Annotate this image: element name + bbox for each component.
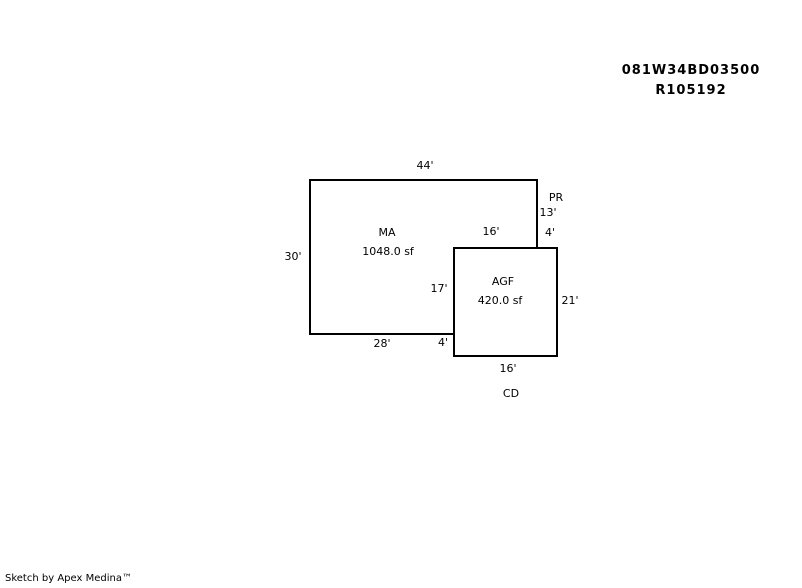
dim-agf-left: 17' — [430, 283, 447, 295]
agf-area-label: 420.0 sf — [478, 295, 523, 307]
ma-outline — [310, 180, 537, 334]
ma-area-label: 1048.0 sf — [362, 246, 414, 258]
dim-agf-top: 16' — [482, 226, 499, 238]
cd-code-label: CD — [503, 388, 519, 400]
ma-code-label: MA — [378, 227, 395, 239]
building-sketch — [0, 0, 802, 588]
dim-ma-bottom-step: 4' — [438, 337, 448, 349]
dim-ma-top: 44' — [416, 160, 433, 172]
dim-agf-bottom: 16' — [499, 363, 516, 375]
sketch-page: 081W34BD03500 R105192 44' 30' 28' 4' PR … — [0, 0, 802, 588]
dim-ma-bottom: 28' — [373, 338, 390, 350]
dim-pr-height: 13' — [539, 207, 556, 219]
agf-code-label: AGF — [492, 276, 514, 288]
dim-ma-left: 30' — [284, 251, 301, 263]
dim-agf-right: 21' — [561, 295, 578, 307]
dim-pr-width: 4' — [545, 227, 555, 239]
pr-code-label: PR — [549, 192, 563, 204]
footer-credit: Sketch by Apex Medina™ — [5, 573, 132, 585]
